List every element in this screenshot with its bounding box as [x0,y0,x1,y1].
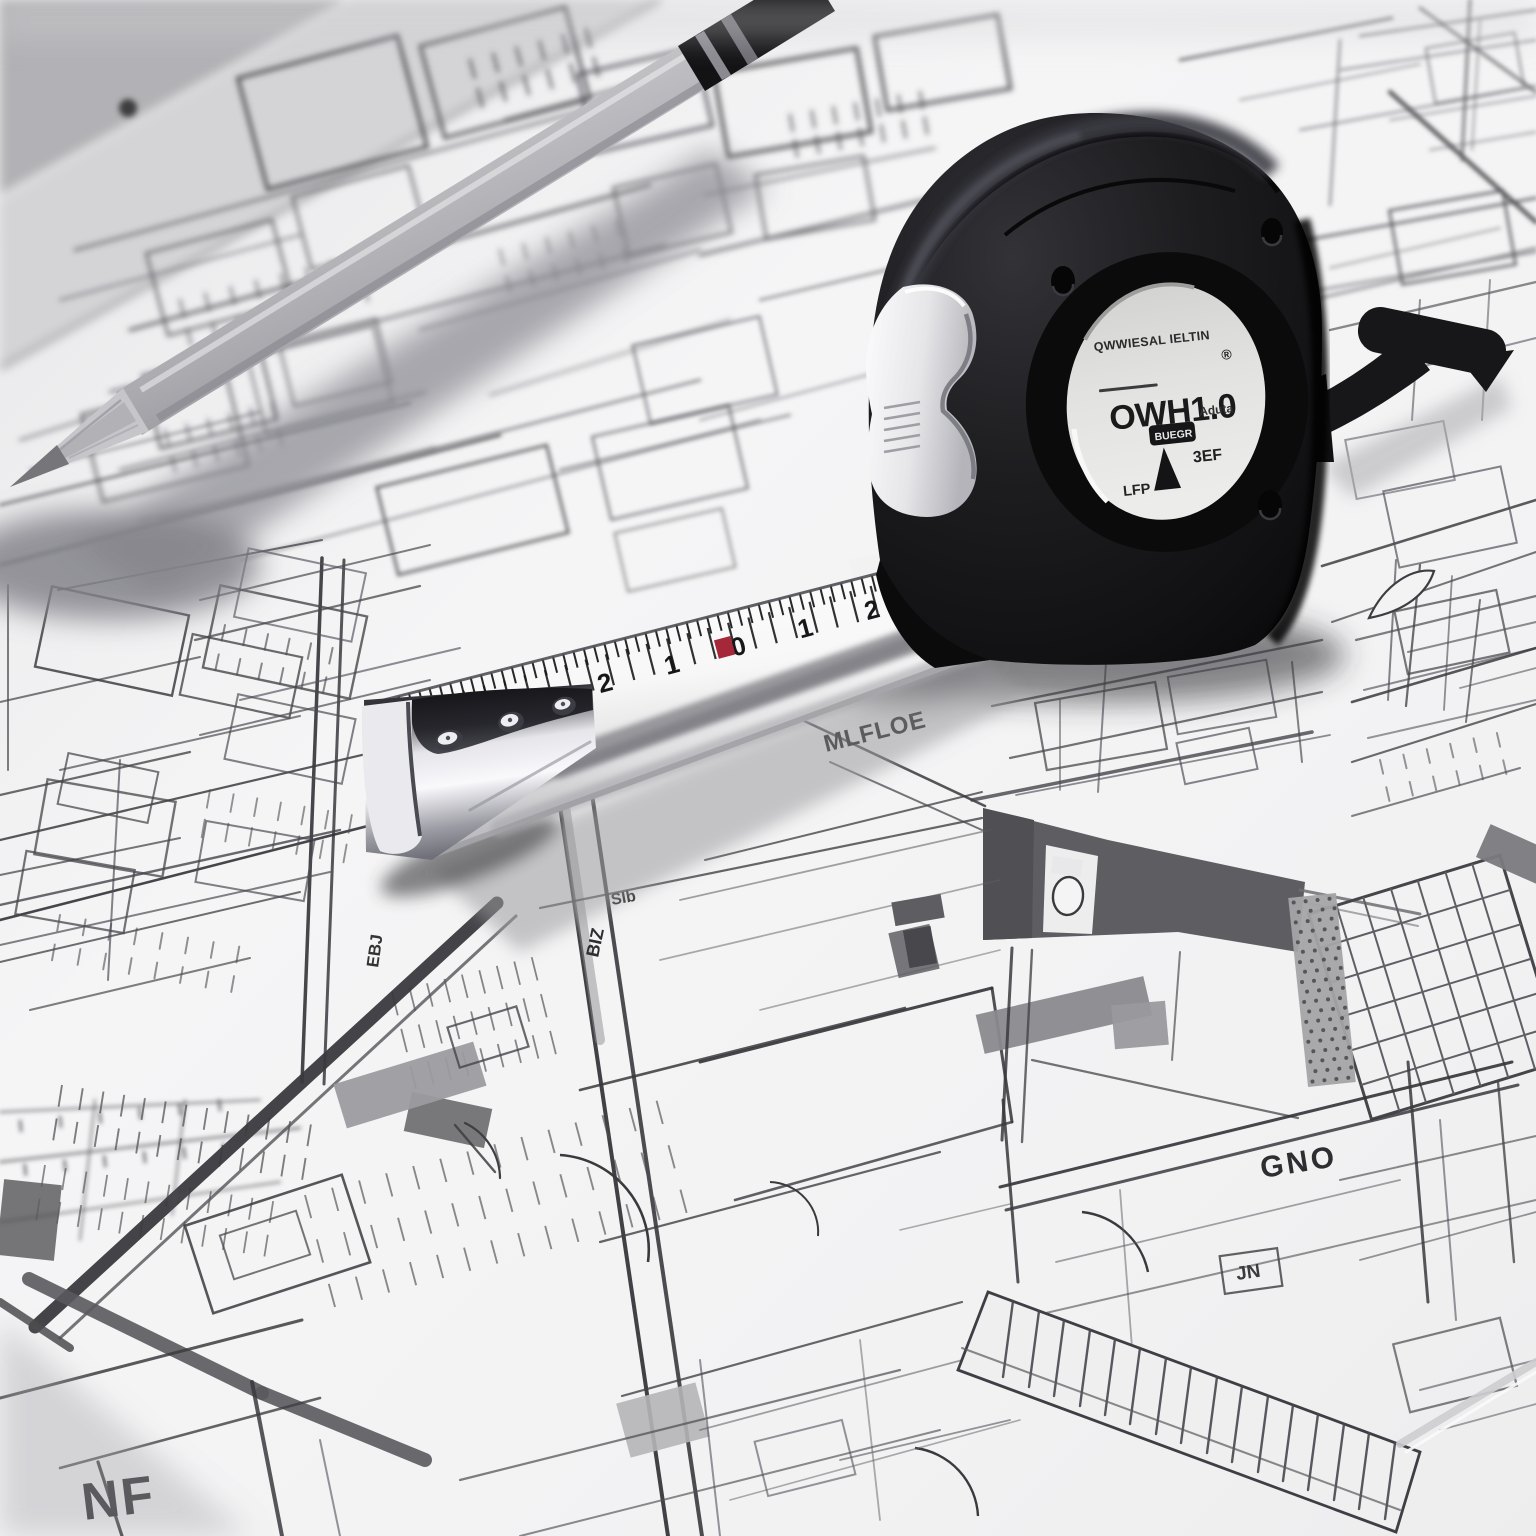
svg-text:JN: JN [1235,1261,1262,1285]
svg-text:3EF: 3EF [1192,446,1223,466]
svg-text:LFP: LFP [1122,481,1151,500]
